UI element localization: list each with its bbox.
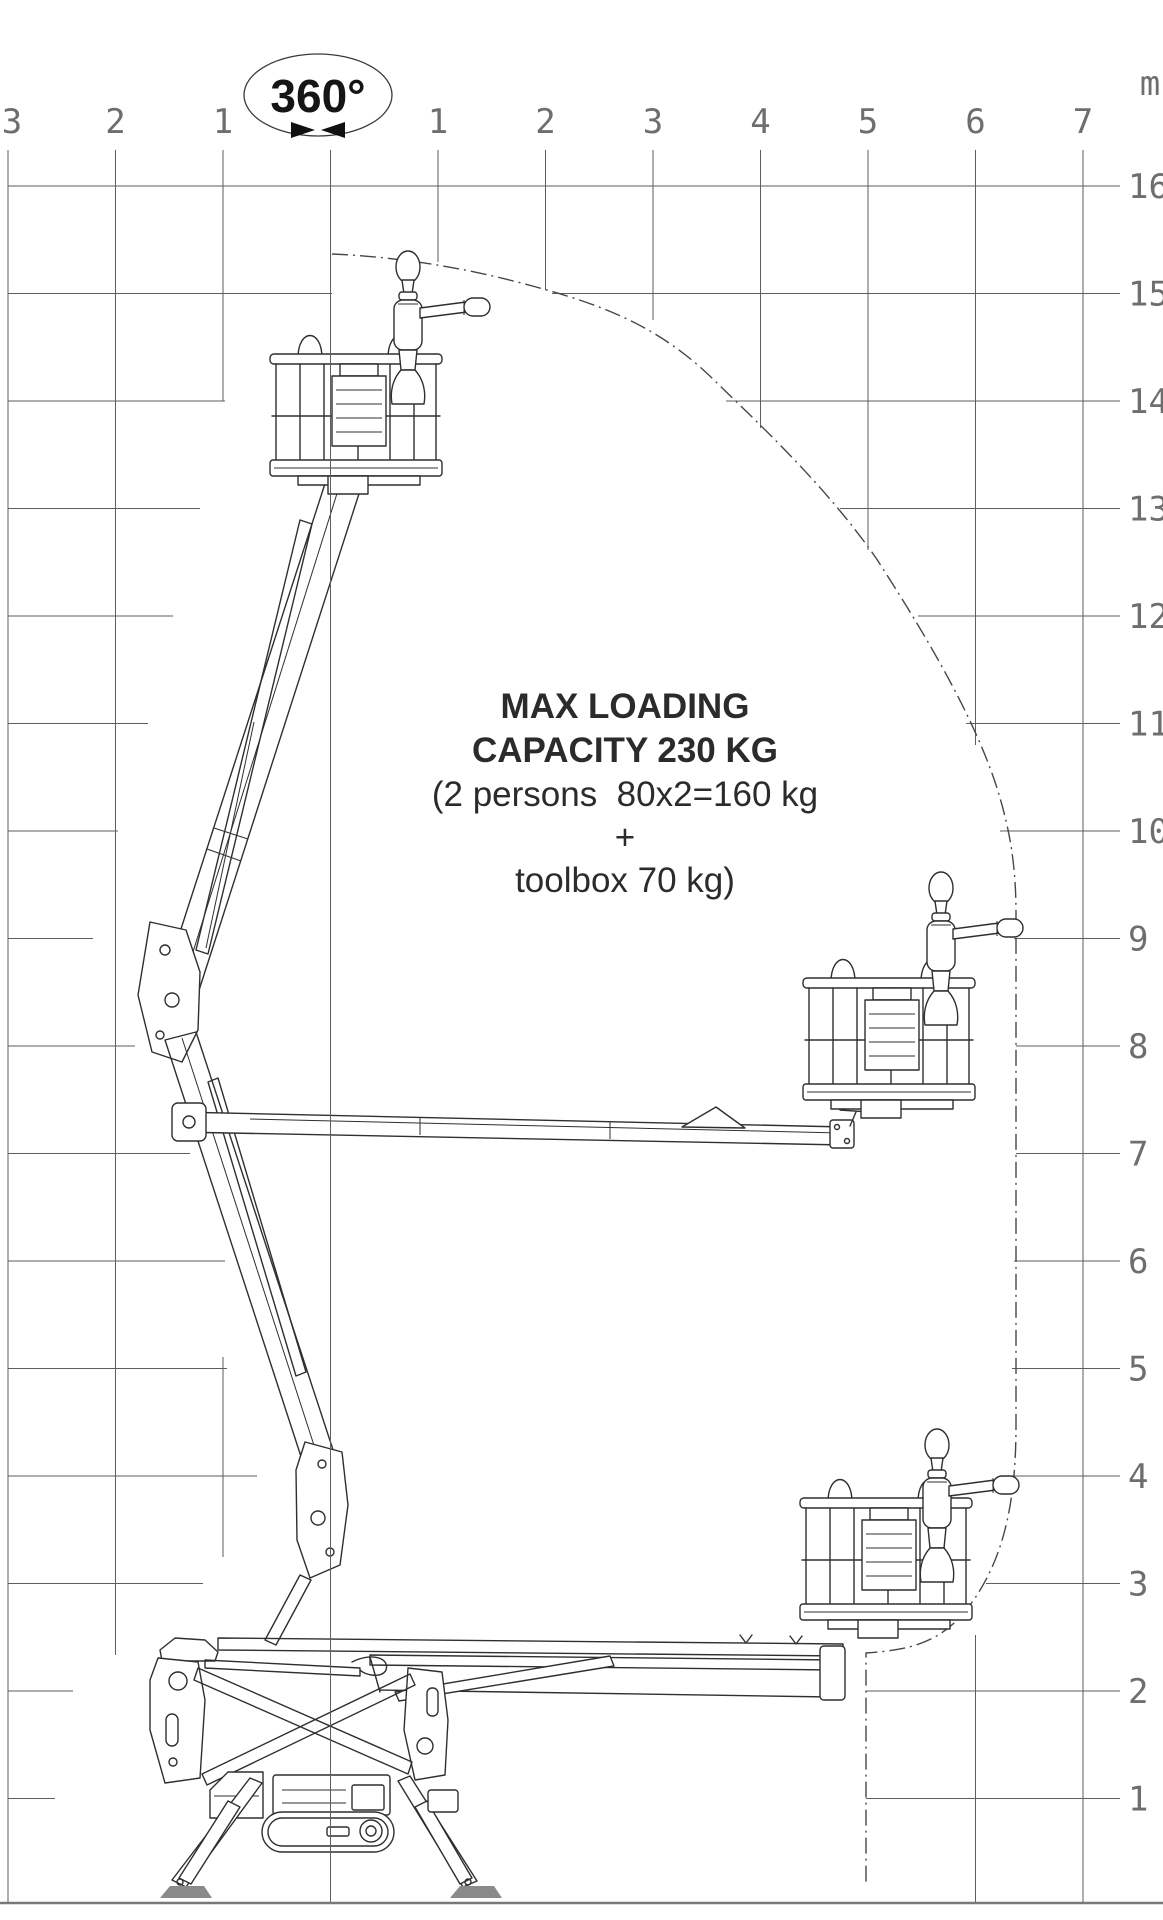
y-axis-label: 14 [1128,382,1163,422]
capacity-line-4: + [615,818,635,857]
basket-rotator-elevated [391,251,490,404]
capacity-line-2: CAPACITY 230 KG [472,731,778,770]
y-axis-label: 5 [1128,1350,1148,1390]
machine-mid-pose [172,1092,898,1148]
y-axis-labels: 16 15 14 13 12 11 10 9 8 7 6 5 4 3 2 1 [1128,167,1163,1820]
chassis [150,1442,502,1898]
y-axis-label: 8 [1128,1027,1148,1067]
foot-pad [450,1886,502,1898]
foot-pad [160,1886,212,1898]
x-axis-label: 4 [750,102,770,142]
x-axis-label: 1 [213,102,233,142]
y-axis-label: 2 [1128,1672,1148,1712]
x-axis-label: 5 [858,102,878,142]
y-axis-label: 6 [1128,1242,1148,1282]
y-axis-label: 3 [1128,1565,1148,1605]
capacity-line-5: toolbox 70 kg) [515,861,735,900]
x-axis-label: 1 [428,102,448,142]
machine-elevated-pose [138,462,366,1478]
x-axis-label: 2 [535,102,555,142]
lower-arm [165,1032,338,1478]
y-axis-label: 10 [1128,812,1163,852]
y-axis-label: 4 [1128,1457,1148,1497]
outrigger-leg [415,1801,472,1884]
y-axis-label: 11 [1128,705,1163,745]
x-axis-label: 6 [965,102,985,142]
reach-diagram-svg: 360° 3 2 1 1 2 3 4 5 6 7 m 16 15 14 13 1… [0,0,1163,1920]
y-axis-label: 12 [1128,597,1163,637]
y-axis-label: 15 [1128,275,1163,315]
y-axis-label: 16 [1128,167,1163,207]
basket-rotator-mid [924,872,1023,1025]
x-axis-label: 7 [1073,102,1093,142]
x-axis-label: 3 [643,102,663,142]
height-unit-label: m [1140,64,1160,104]
capacity-line-3: (2 persons 80x2=160 kg [432,775,818,814]
rotation-badge-label: 360° [270,70,365,122]
y-axis-label: 9 [1128,920,1148,960]
chassis-body [273,1775,390,1815]
machine-stowed-pose [218,1635,845,1701]
y-axis-label: 13 [1128,490,1163,530]
boom-pivot-bracket [296,1442,348,1578]
x-axis-label: 2 [105,102,125,142]
capacity-line-1: MAX LOADING [501,687,750,726]
reach-diagram: 360° 3 2 1 1 2 3 4 5 6 7 m 16 15 14 13 1… [0,0,1163,1920]
telescopic-boom-low [218,1638,843,1656]
capacity-note: MAX LOADING CAPACITY 230 KG (2 persons 8… [432,687,818,900]
y-axis-label: 1 [1128,1780,1148,1820]
rotation-badge: 360° [244,54,392,138]
elbow-knuckle [138,922,200,1062]
y-axis-label: 7 [1128,1135,1148,1175]
right-frame-plate [404,1668,448,1780]
x-axis-labels: 3 2 1 1 2 3 4 5 6 7 [2,102,1093,142]
x-axis-label: 3 [2,102,22,142]
